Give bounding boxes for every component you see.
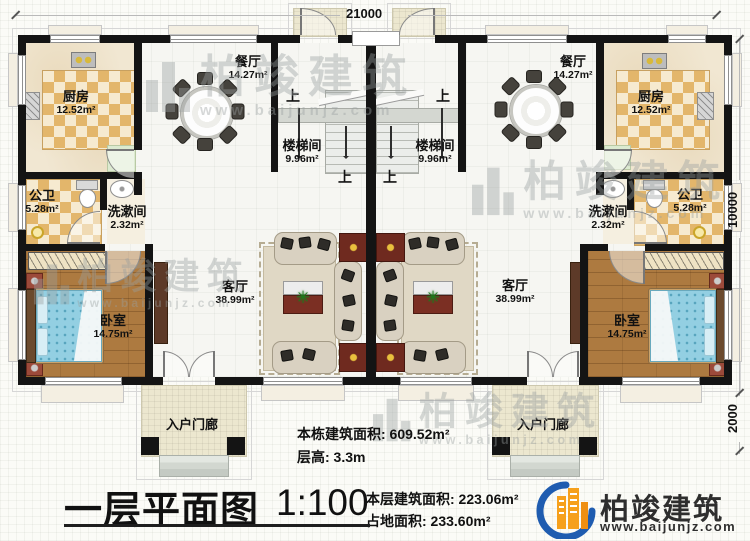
window — [18, 290, 26, 360]
room-name: 客厅 — [215, 280, 254, 295]
wall-segment — [724, 230, 732, 290]
wall-segment — [724, 35, 732, 55]
room-label-kitchen-right: 厨房 12.52m² — [631, 90, 670, 116]
porch-column — [579, 437, 597, 455]
window-sill — [261, 385, 345, 401]
window-sill — [8, 183, 18, 232]
room-label-kitchen-left: 厨房 12.52m² — [56, 90, 95, 116]
stair-landing-left — [278, 108, 368, 123]
stat-level-area: 本层建筑面积: 223.06m² — [366, 489, 518, 509]
media-cabinet-left-bottom — [339, 343, 368, 372]
porch-steps-left — [159, 455, 229, 477]
sofa-pillow — [280, 237, 294, 250]
floor-drain — [31, 226, 44, 239]
window-sill — [8, 288, 18, 362]
window — [724, 290, 732, 360]
wall-segment — [18, 230, 26, 290]
dimension-line-right — [739, 238, 740, 396]
brand-url: www.baijunjz.com — [600, 519, 736, 534]
room-name: 楼梯间 — [282, 139, 321, 154]
sofa-pillow — [435, 348, 449, 362]
sofa-left-bottom — [272, 341, 337, 374]
sofa-right-side — [376, 261, 404, 341]
dish-rack — [697, 92, 714, 120]
sofa-right-bottom — [401, 341, 466, 374]
sofa-pillow — [317, 238, 331, 252]
door-leaf — [527, 351, 529, 377]
wall-segment — [18, 35, 26, 55]
dining-chair — [526, 70, 542, 83]
window-sill — [8, 53, 18, 107]
door-leaf — [433, 8, 435, 35]
wall-segment — [472, 377, 527, 385]
door-leaf — [643, 251, 645, 284]
stair-up-label: 上 — [383, 167, 397, 187]
room-name: 楼梯间 — [415, 139, 454, 154]
door-leaf — [163, 351, 165, 377]
sofa-pillow — [302, 348, 316, 362]
stair-up-label: 上 — [338, 167, 352, 187]
sofa-pillow — [426, 236, 439, 249]
dining-chair — [197, 72, 213, 85]
window — [45, 377, 122, 385]
window-sill — [48, 25, 102, 35]
wall-segment — [134, 172, 142, 195]
drawing-scale: 1:100 — [276, 482, 369, 524]
dimension-side-main-value: 10000 — [725, 182, 740, 238]
wall-segment — [145, 244, 153, 385]
stair-arrowhead-right-2 — [388, 156, 394, 162]
stove — [71, 52, 96, 68]
media-cabinet-right-top — [376, 233, 405, 262]
door-leaf — [105, 251, 107, 284]
wall-segment — [724, 105, 732, 185]
room-label-bedroom-right: 卧室 14.75m² — [607, 314, 646, 340]
room-area: 2.32m² — [588, 220, 627, 232]
sofa-left-side — [334, 261, 362, 341]
window-sill — [41, 385, 124, 403]
stair-arrow-right-2 — [390, 126, 392, 156]
room-label-washroom-right: 洗漱间 2.32m² — [588, 205, 627, 231]
sofa-pillow — [413, 349, 427, 362]
room-area: 12.52m² — [56, 105, 95, 117]
stair-up-label: 上 — [436, 86, 450, 106]
dining-chair — [197, 138, 213, 151]
dining-chair — [166, 103, 179, 119]
sofa-pillow — [383, 319, 397, 332]
sofa-right-top — [402, 232, 465, 265]
room-label-dining-left: 餐厅 14.27m² — [228, 55, 267, 81]
dimension-side-porch-value: 2000 — [725, 396, 740, 442]
room-area: 38.99m² — [495, 294, 534, 306]
stair-up-label: 上 — [286, 86, 300, 106]
wall-segment — [100, 35, 170, 43]
door-leaf — [300, 8, 302, 35]
sofa-pillow — [342, 294, 356, 307]
room-label-porch-left: 入户门廊 — [166, 414, 218, 433]
window — [622, 377, 700, 385]
sofa-pillow — [298, 236, 311, 249]
window-sill — [732, 288, 742, 362]
room-name: 洗漱间 — [588, 205, 627, 220]
sofa-pillow — [384, 294, 398, 307]
room-name: 公卫 — [673, 188, 706, 203]
window — [50, 35, 100, 43]
wall-segment — [645, 244, 725, 251]
room-label-bathroom-left: 公卫 5.28m² — [25, 189, 58, 215]
dining-chair — [561, 101, 574, 117]
room-label-porch-right: 入户门廊 — [517, 414, 569, 433]
sofa-pillow — [340, 268, 355, 282]
room-name: 餐厅 — [228, 55, 267, 70]
door-leaf — [634, 242, 667, 244]
room-area: 5.28m² — [673, 203, 706, 215]
wall-segment — [700, 377, 732, 385]
party-wall — [366, 35, 376, 377]
media-cabinet-right-bottom — [376, 343, 405, 372]
media-cabinet-left-top — [339, 233, 368, 262]
room-name: 厨房 — [56, 90, 95, 105]
window-sill — [398, 385, 474, 401]
window — [487, 35, 567, 43]
plant-icon: ✳ — [426, 288, 440, 308]
window — [400, 377, 472, 385]
wall-segment — [100, 179, 107, 210]
room-area: 14.75m² — [607, 329, 646, 341]
wall-segment — [580, 244, 588, 385]
wardrobe-left — [28, 252, 108, 270]
room-label-stairwell-right: 楼梯间 9.96m² — [415, 139, 454, 165]
stat-building-area: 本栋建筑面积: 609.52m² — [297, 424, 449, 444]
wall-segment — [627, 179, 634, 210]
wall-segment — [271, 43, 278, 172]
door-leaf — [577, 351, 579, 377]
door-leaf — [213, 351, 215, 377]
floor-drain — [693, 226, 706, 239]
dimension-line-top — [15, 15, 340, 16]
window — [668, 35, 706, 43]
sofa-pillow — [280, 349, 294, 362]
window — [263, 377, 343, 385]
wall-segment — [134, 43, 142, 150]
plant-icon: ✳ — [296, 288, 310, 308]
washbasin — [601, 180, 625, 198]
room-name: 餐厅 — [553, 55, 592, 70]
room-name: 客厅 — [495, 279, 534, 294]
sofa-pillow — [408, 237, 422, 250]
stair-arrowhead-left-2 — [343, 156, 349, 162]
room-area: 9.96m² — [282, 154, 321, 166]
window-sill — [666, 25, 708, 35]
room-name: 卧室 — [607, 314, 646, 329]
window — [170, 35, 257, 43]
stat-footprint: 占地面积: 233.60m² — [366, 511, 490, 531]
room-area: 14.75m² — [93, 329, 132, 341]
bed-pillow — [37, 296, 48, 324]
brand-logo-icon — [536, 481, 596, 539]
wall-segment — [596, 43, 604, 150]
dimension-line-top — [408, 15, 717, 16]
room-area: 14.27m² — [553, 70, 592, 82]
door-leaf — [106, 149, 134, 151]
window-sill — [168, 25, 259, 35]
wall-segment — [588, 244, 608, 251]
room-name: 公卫 — [25, 189, 58, 204]
wall-segment — [18, 377, 45, 385]
dining-chair — [232, 103, 245, 119]
room-name: 卧室 — [93, 314, 132, 329]
wall-segment — [122, 377, 163, 385]
room-label-bedroom-left: 卧室 14.75m² — [93, 314, 132, 340]
washbasin — [110, 180, 134, 198]
room-area: 5.28m² — [25, 204, 58, 216]
bed-pillow — [37, 328, 48, 356]
sofa-pillow — [382, 268, 397, 282]
nightstand — [26, 273, 43, 289]
porch-column — [227, 437, 245, 455]
room-area: 38.99m² — [215, 295, 254, 307]
wall-segment — [257, 35, 300, 43]
porch-column — [141, 437, 159, 455]
room-name: 洗漱间 — [107, 205, 146, 220]
room-area: 9.96m² — [415, 154, 454, 166]
wall-segment — [458, 43, 466, 172]
room-label-living-left: 客厅 38.99m² — [215, 280, 254, 306]
room-area: 12.52m² — [631, 105, 670, 117]
stove — [642, 53, 667, 69]
tv-console-left — [154, 262, 168, 344]
room-label-washroom-left: 洗漱间 2.32m² — [107, 205, 146, 231]
window-sill — [620, 385, 702, 403]
room-label-dining-right: 餐厅 14.27m² — [553, 55, 592, 81]
wall-niche — [352, 31, 400, 46]
wall-segment — [215, 377, 263, 385]
wall-segment — [25, 244, 105, 251]
door-leaf — [67, 242, 100, 244]
room-label-bathroom-right: 公卫 5.28m² — [673, 188, 706, 214]
stair-landing-right — [376, 108, 460, 123]
bed-headboard-left — [26, 289, 36, 363]
title-underline — [64, 524, 370, 527]
floor-plan-canvas: ✳ ✳ — [0, 0, 750, 541]
sofa-left-top — [274, 232, 337, 265]
room-area: 2.32m² — [107, 220, 146, 232]
sofa-pillow — [341, 319, 355, 332]
room-label-living-right: 客厅 38.99m² — [495, 279, 534, 305]
bed-pillow — [704, 328, 715, 356]
dining-chair — [495, 101, 508, 117]
window-sill — [485, 25, 569, 35]
porch-column — [492, 437, 510, 455]
bed-pillow — [704, 296, 715, 324]
wardrobe-right — [644, 252, 724, 270]
window — [18, 55, 26, 105]
dining-chair — [526, 136, 542, 149]
wall-segment — [343, 377, 400, 385]
wall-segment — [435, 35, 487, 43]
stair-arrow-left-2 — [345, 126, 347, 156]
room-label-stairwell-left: 楼梯间 9.96m² — [282, 139, 321, 165]
stat-floor-height: 层高: 3.3m — [297, 447, 365, 467]
window — [724, 55, 732, 105]
sofa-pillow — [445, 238, 459, 252]
bed-blanket — [651, 291, 681, 361]
porch-steps-right — [510, 455, 580, 477]
window-sill — [732, 53, 742, 107]
room-area: 14.27m² — [228, 70, 267, 82]
door-leaf — [604, 149, 632, 151]
wall-segment — [567, 35, 668, 43]
wall-segment — [596, 172, 604, 195]
dimension-top-value: 21000 — [346, 6, 382, 21]
dimension-line-right — [739, 40, 740, 180]
room-name: 厨房 — [631, 90, 670, 105]
